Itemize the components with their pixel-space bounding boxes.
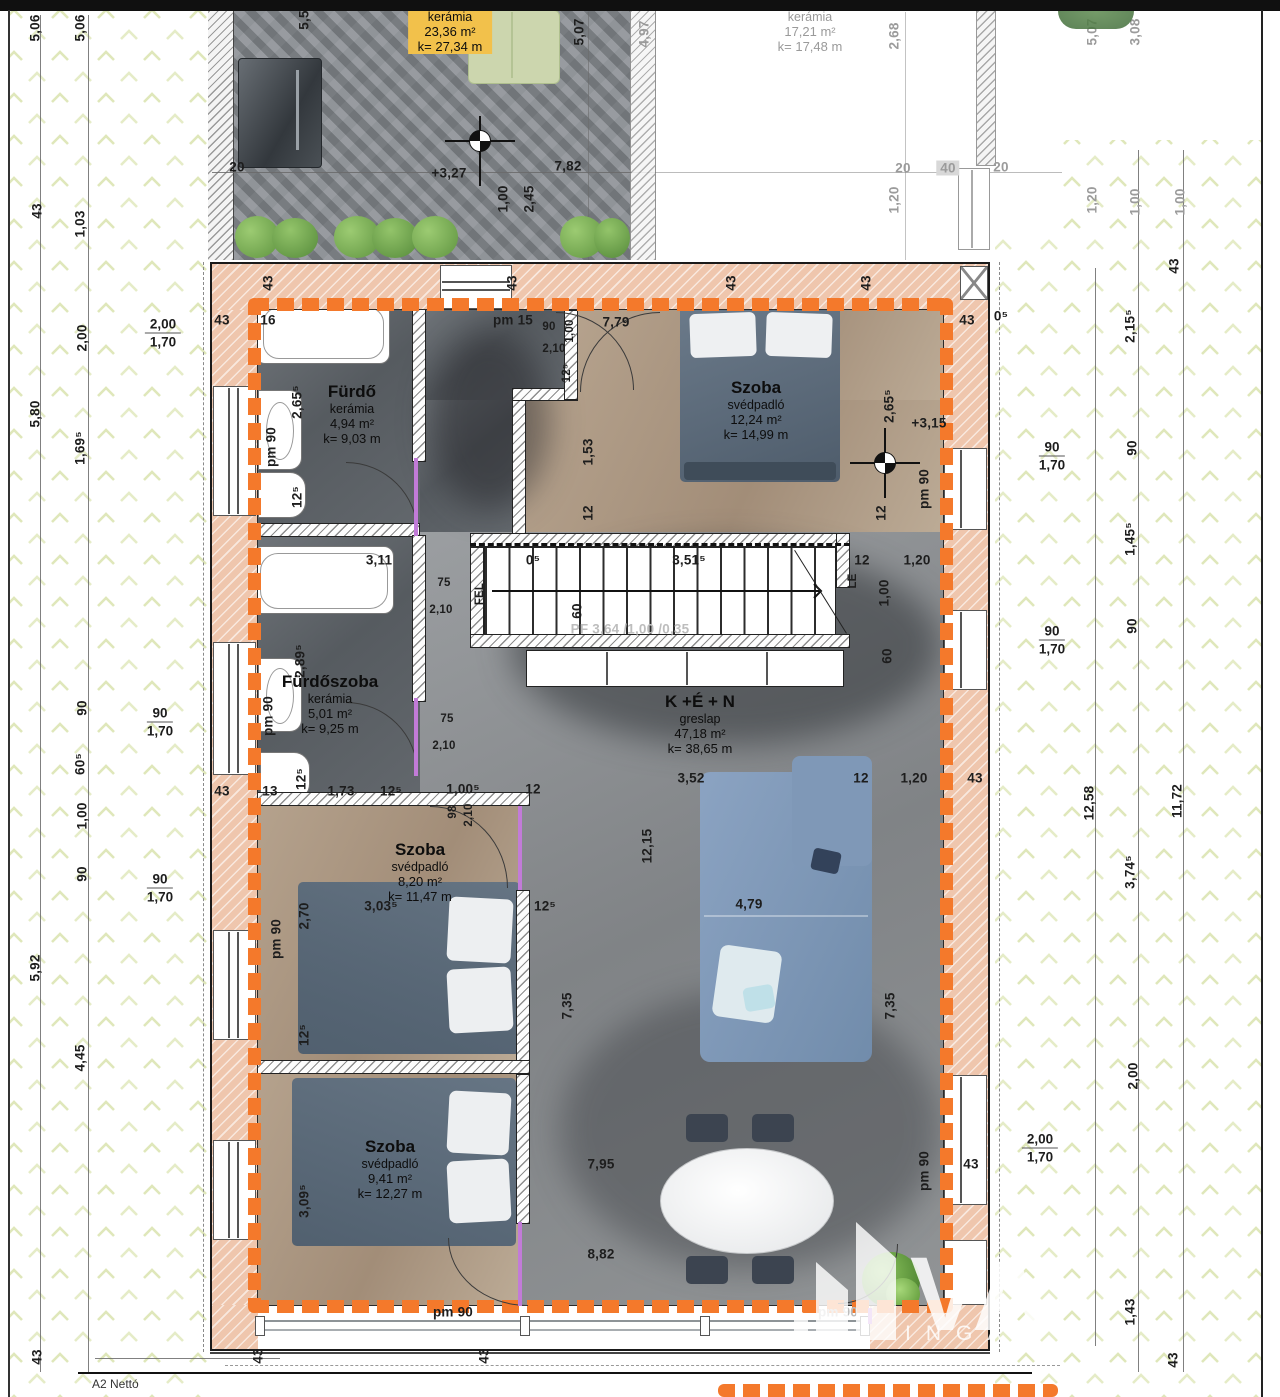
room-material: greslap [665,712,735,726]
room-area: 47,18 m² [665,726,735,741]
room-name: Szoba [388,840,452,860]
dimension-label: 43 [214,313,229,328]
insulation-line-bottom-outside [718,1384,1058,1397]
dimension-label: 5,92 [28,954,43,981]
dimension-label: 7,35 [560,992,575,1019]
dimension-label: 1,00 [496,185,511,212]
dimension-label: 90 [1125,440,1140,455]
watermark-subtext: INGA [905,1322,1075,1346]
dimension-label: 98 [447,805,459,818]
dimension-label: 2,15⁵ [1123,309,1138,343]
dimension-label: 2,10 [432,740,455,752]
dimension-label: 43 [30,203,45,218]
dimension-label: 20 [229,160,244,175]
room-label: K +É + Ngreslap47,18 m²k= 38,65 m [665,692,735,756]
dimension-label: 43 [1167,258,1182,273]
dimension-label: 5,07 [572,18,587,45]
dimension-label: 2,10 [429,604,452,616]
dining-chair [686,1256,728,1284]
window-left-glazing [228,644,230,773]
dimension-label: FEL [474,583,486,605]
window-left-glazing [228,932,230,1038]
room-name: K +É + N [665,692,735,712]
insulation-line-right [940,298,953,1313]
dimension-label: 7,79 [602,315,629,330]
dimension-label: 1,20 [887,186,902,213]
terrace-sofa-cushion-line [511,12,513,78]
dimension-label: 4,45 [73,1044,88,1071]
property-line [999,262,1000,1352]
bed-bottom-pillow [446,1158,511,1223]
dimension-label: 2,00 [1126,1062,1141,1089]
room-material: svédpadló [388,860,452,874]
dimension-label: 12,58 [1082,786,1097,821]
bed-topright-pillow [765,312,832,358]
room-area: 5,01 m² [282,706,378,721]
dimension-label: 43 [261,275,276,290]
dimension-label: 12⁵ [294,768,309,790]
dimension-label: 8,82 [587,1247,614,1262]
dimension-label: 12⁵ [297,1024,312,1046]
dimension-label: 3,74⁵ [1123,855,1138,889]
room-label: Szobasvédpadló12,24 m²k= 14,99 m [724,378,789,442]
tree-foliage-top [1058,11,1134,29]
sheet-border-right [1261,10,1263,1397]
dimension-label: 12 [874,505,889,520]
terrace-grill [238,58,322,168]
stair-walk-line [492,590,812,592]
dimension-line [905,12,906,260]
dimension-label: 43 [967,771,982,786]
window-height: 1,70 [1039,641,1065,657]
top-black-bar [0,0,1280,11]
dimension-label: 3,09⁵ [297,1184,312,1218]
room-material: kerámia [408,10,492,24]
terrace-bush [272,218,318,258]
room-material: kerámia [323,402,380,416]
window-height: 1,70 [1022,1149,1058,1165]
dimension-label: 1,00 [564,319,576,342]
dimension-label: pm 90 [261,696,276,736]
door-jamb [518,1222,522,1306]
window-width: 2,00 [1022,1132,1058,1149]
dimension-label: 12 [581,505,596,520]
dimension-label: 60 [570,603,585,618]
chain-line [1183,150,1184,1372]
insulation-line-left [248,298,261,1313]
sliding-door-glazing [257,1320,870,1322]
terrace-bush [412,216,458,258]
dimension-label: 20 [993,160,1008,175]
dimension-label: 1,43 [1123,1298,1138,1325]
insulation-line-top [252,298,952,311]
dimension-label: 7,82 [554,159,581,174]
dimension-label: 75 [440,713,453,725]
dimension-label: LE [847,573,859,588]
window-top-glazing [442,281,510,283]
dimension-label: 1,20 [900,771,927,786]
room-name: Fürdőszoba [282,672,378,692]
dimension-label: 90 [75,866,90,881]
window-left-glazing [228,388,230,514]
door-jamb [414,458,418,536]
dimension-label: +3,27 [431,166,466,181]
property-line [203,262,204,1352]
room-perimeter: k= 9,25 m [282,721,378,736]
corner-window-x-right [960,266,988,300]
dimension-label: 43 [724,275,739,290]
window-size-tag: 901,70 [1039,440,1065,473]
dimension-label: 43 [477,1348,492,1363]
room-area: 12,24 m² [724,412,789,427]
dimension-label: 2,10 [542,343,565,355]
dimension-label: 5,06 [73,14,88,41]
sliding-door-post [255,1316,265,1336]
room-name: Fürdő [323,382,380,402]
dimension-label: 12 [854,553,869,568]
dimension-label: 3,11 [366,553,392,568]
dimension-label: 1,53 [581,438,596,465]
dimension-label: 5,06 [28,14,43,41]
window-left-glazing [237,644,239,773]
room-material: svédpadló [358,1157,423,1171]
window-left-glazing [228,1142,230,1238]
room-perimeter: k= 27,34 m [408,39,492,54]
sofa-cushion-line [704,915,868,917]
window-width: 90 [1039,624,1065,641]
stair-break-line [470,543,850,546]
stair-closet-divider [606,652,608,685]
window-size-tag: 2,001,70 [145,317,181,350]
wall-interior [516,1074,530,1224]
terrace-bush [594,218,630,258]
dimension-label: 43 [963,1157,978,1172]
room-label: Fürdőszobakerámia5,01 m²k= 9,25 m [282,672,378,736]
dimension-label: pm 90 [917,1151,932,1191]
terrace-left-wall [208,10,234,260]
bed-topright-pillow [689,312,756,358]
window-height: 1,70 [145,334,181,350]
terrace-right-wall [976,10,996,166]
window-top-glazing [442,289,510,291]
dimension-label: 1,45⁵ [1123,522,1138,556]
dimension-label: 12⁵ [534,899,556,914]
dimension-label: 75 [437,577,450,589]
room-perimeter: k= 14,99 m [724,427,789,442]
dimension-label: 0⁵ [994,309,1008,324]
dimension-label: 7,95 [587,1157,614,1172]
sliding-door-post [520,1316,530,1336]
bed-mid-pillow [446,966,513,1033]
room-name: Szoba [358,1137,423,1157]
terrace-grill-handle [296,70,299,150]
dimension-label: 90 [75,700,90,715]
dimension-label: pm 15 [493,313,533,328]
stair-closet-divider [686,652,688,685]
room-area: 8,20 m² [388,874,452,889]
dimension-label: 5,5 [297,10,312,29]
room-perimeter: k= 9,03 m [323,431,380,446]
dimension-label: 43 [859,275,874,290]
dimension-label: 7,35 [883,992,898,1019]
dimension-label: 12 [525,782,540,797]
dimension-label: 1,03 [73,210,88,237]
dimension-label: 13 [262,784,277,799]
dining-chair [752,1256,794,1284]
dimension-label: 43 [505,275,520,290]
dimension-label: 2,10 [463,803,475,826]
wall-interior [516,890,530,1062]
room-area: 9,41 m² [358,1171,423,1186]
dimension-label: 2,68 [887,22,902,49]
sliding-door-glazing [257,1329,870,1331]
room-area: 4,94 m² [323,416,380,431]
window-right-glazing [960,450,962,528]
dimension-label: 1,20 [1085,186,1100,213]
dimension-label: 1,73 [327,784,354,799]
watermark-logo: VA [792,1210,1042,1375]
window-left-glazing [237,388,239,514]
room-perimeter: k= 38,65 m [665,741,735,756]
level-symbol-bedroom [874,452,896,474]
dining-chair [752,1114,794,1142]
room-label: Szobasvédpadló8,20 m²k= 11,47 m [388,840,452,904]
wall-interior [412,300,426,462]
dimension-label: 5,80 [28,400,43,427]
window-left-glazing [237,1142,239,1238]
sofa-blanket [711,944,782,1024]
dimension-label: 3,52 [677,771,704,786]
door-jamb [414,698,418,776]
dimension-label: 1,69⁵ [73,431,88,465]
dimension-label: 20 [895,161,910,176]
dimension-label: 43 [959,313,974,328]
window-size-tag: 901,70 [147,872,173,905]
window-left-glazing [237,932,239,1038]
level-symbol-terrace [469,130,491,152]
floor-plan-sheet: 5,065,065,55,074,972,685,073,0820+3,277,… [0,0,1280,1397]
room-material: kerámia [282,692,378,706]
dimension-label: 1,00 [75,802,90,829]
dimension-label: 90 [1125,618,1140,633]
bathtub-top-inner [263,307,384,359]
room-perimeter: k= 17,48 m [768,39,852,54]
room-label: Szobasvédpadló9,41 m²k= 12,27 m [358,1137,423,1201]
dimension-label: 43 [1166,1352,1181,1367]
dimension-label: pm 90 [433,1305,473,1320]
bed-bottom-pillow [446,1090,511,1155]
dimension-label: 4,97 [637,20,652,47]
dimension-label: 12,15 [640,829,655,864]
room-area: 17,21 m² [768,24,852,39]
dining-chair [686,1114,728,1142]
dimension-label: pm 90 [264,427,279,467]
chain-line [1138,150,1139,1372]
room-area: 23,36 m² [408,24,492,39]
window-height: 1,70 [147,889,173,905]
window-right-glazing [960,1077,962,1203]
wall-interior [512,400,526,535]
dimension-label: 1,00⁵ [446,782,480,797]
dimension-label: 12⁵ [380,784,402,799]
dimension-label: 60⁵ [73,753,88,775]
floor-shadow [430,330,550,510]
window-width: 90 [1039,440,1065,457]
stair-closet [526,650,844,687]
bed-mid-pillow [446,896,513,963]
room-material: kerámia [768,10,852,24]
sliding-door-post [700,1316,710,1336]
terrace-right-window [958,168,990,250]
room-material: svédpadló [724,398,789,412]
dimension-label: 1,20 [903,553,930,568]
window-size-tag: 2,001,70 [1022,1132,1058,1165]
dimension-label: 2,45 [522,185,537,212]
dimension-label: 12⁵ [290,486,305,508]
sheet-border-left [8,10,10,1397]
chain-line [88,15,89,1372]
dimension-label: +3,15 [911,416,946,431]
dimension-label: 12 [853,771,868,786]
dimension-label: 43 [30,1349,45,1364]
room-perimeter: k= 12,27 m [358,1186,423,1201]
dimension-label: pm 90 [269,919,284,959]
room-label: Fürdőkerámia4,94 m²k= 9,03 m [323,382,380,446]
dimension-label: pm 90 [917,469,932,509]
dimension-label: 12⁵ [561,364,573,383]
dimension-label: 2,65⁵ [290,385,305,419]
dimension-label: 16 [260,313,275,328]
dimension-label: 43 [251,1348,266,1363]
dimension-label: 40 [936,161,959,176]
window-height: 1,70 [147,723,173,739]
terrace-right-window-line [971,170,973,248]
dimension-label: 43 [214,784,229,799]
dimension-label: 1,00 [1128,188,1143,215]
dimension-label: 2,65⁵ [882,389,897,423]
window-right-glazing [960,612,962,688]
dimension-label: 4,79 [735,897,762,912]
window-height: 1,70 [1039,457,1065,473]
dimension-label: 2,00 [75,324,90,351]
window-size-tag: 901,70 [1039,624,1065,657]
sofa-pillow-cyan [742,984,776,1013]
dimension-label: 90 [542,321,555,333]
dimension-label: 2,70 [297,902,312,929]
wall-interior [412,535,426,702]
dimension-label: PF 3,64 /1,00 /0,35 [571,622,690,637]
window-width: 90 [147,872,173,889]
window-size-tag: 901,70 [147,706,173,739]
room-perimeter: k= 11,47 m [388,889,452,904]
dimension-label: 1,00 [1173,188,1188,215]
bed-topright-foot [684,462,836,480]
window-width: 90 [147,706,173,723]
dimension-label: 11,72 [1170,784,1185,818]
stair-closet-divider [766,652,768,685]
dimension-label: 0⁵ [526,553,540,568]
window-width: 2,00 [145,317,181,334]
dimension-label: 1,00 [877,579,892,606]
dimension-label: 60 [880,648,895,663]
room-name: Szoba [724,378,789,398]
wall-interior [257,1060,530,1074]
dimension-label: 3,51⁵ [672,553,706,568]
sheet-title-label: A2 Nettó [92,1377,139,1391]
door-jamb [518,806,522,890]
